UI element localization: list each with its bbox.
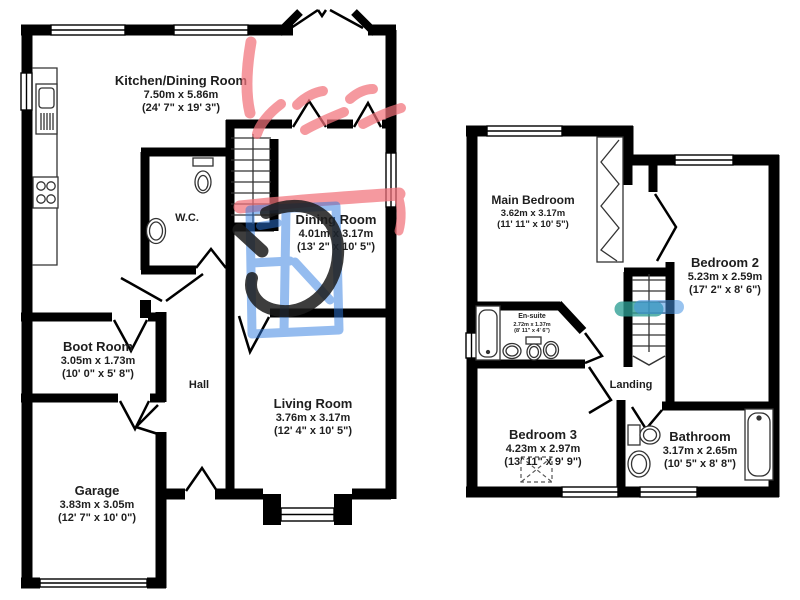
room-dim-metric: 4.23m x 2.97m (504, 443, 581, 456)
room-label-kitchen: Kitchen/Dining Room 7.50m x 5.86m (24' 7… (115, 73, 247, 116)
room-label-living: Living Room 3.76m x 3.17m (12' 4" x 10' … (274, 396, 353, 439)
room-dim-metric: 3.17m x 2.65m (663, 445, 738, 458)
garage-door-icon (40, 579, 147, 587)
room-label-main-bedroom: Main Bedroom 3.62m x 3.17m (11' 11" x 10… (491, 193, 574, 231)
room-name: Bedroom 3 (504, 427, 581, 443)
room-name: En-suite (513, 313, 550, 322)
room-name: Bathroom (663, 429, 738, 445)
room-label-hall: Hall (189, 379, 209, 392)
french-doors-icon (291, 10, 363, 28)
room-label-bedroom3: Bedroom 3 4.23m x 2.97m (13' 11" x 9' 9"… (504, 427, 581, 470)
room-dim-metric: 5.23m x 2.59m (688, 271, 763, 284)
room-dim-imperial: (13' 2" x 10' 5") (296, 241, 377, 254)
toilet-icon (526, 337, 541, 344)
room-dim-imperial: (10' 0" x 5' 8") (61, 368, 136, 381)
room-dim-imperial: (17' 2" x 8' 6") (688, 284, 763, 297)
room-label-ensuite: En-suite 2.72m x 1.37m (8' 11" x 4' 6") (513, 313, 550, 335)
room-name: Living Room (274, 396, 353, 412)
room-label-dining: Dining Room 4.01m x 3.17m (13' 2" x 10' … (296, 212, 377, 255)
room-label-garage: Garage 3.83m x 3.05m (12' 7" x 10' 0") (58, 483, 136, 526)
toilet-icon (628, 425, 640, 445)
room-dim-imperial: (11' 11" x 10' 5") (491, 219, 574, 231)
room-dim-metric: 3.83m x 3.05m (58, 499, 136, 512)
room-name: Hall (189, 379, 209, 392)
room-name: Main Bedroom (491, 193, 574, 208)
room-dim-metric: 3.76m x 3.17m (274, 412, 353, 425)
room-dim-imperial: (10' 5" x 8' 8") (663, 458, 738, 471)
room-name: W.C. (175, 212, 199, 225)
room-name: Boot Room (61, 339, 136, 355)
room-name: Kitchen/Dining Room (115, 73, 247, 89)
room-label-landing: Landing (610, 379, 653, 392)
room-name: Bedroom 2 (688, 255, 763, 271)
kitchen-fixtures (32, 68, 58, 265)
room-dim-imperial: (8' 11" x 4' 6") (513, 328, 550, 335)
room-label-bathroom: Bathroom 3.17m x 2.65m (10' 5" x 8' 8") (663, 429, 738, 472)
room-dim-imperial: (12' 4" x 10' 5") (274, 425, 353, 438)
room-name: Garage (58, 483, 136, 499)
porch-walls (279, 12, 375, 33)
room-dim-imperial: (12' 7" x 10' 0") (58, 512, 136, 525)
room-dim-metric: 3.05m x 1.73m (61, 355, 136, 368)
room-dim-metric: 3.62m x 3.17m (491, 208, 574, 220)
room-label-boot: Boot Room 3.05m x 1.73m (10' 0" x 5' 8") (61, 339, 136, 382)
stairs-ground-icon (231, 134, 271, 224)
room-label-bedroom2: Bedroom 2 5.23m x 2.59m (17' 2" x 8' 6") (688, 255, 763, 298)
bay-window (263, 494, 352, 525)
room-dim-metric: 4.01m x 3.17m (296, 228, 377, 241)
room-dim-imperial: (24' 7" x 19' 3") (115, 102, 247, 115)
hob-icon (33, 177, 58, 208)
toilet-icon (193, 158, 213, 166)
room-name: Landing (610, 379, 653, 392)
room-name: Dining Room (296, 212, 377, 228)
wall-stub (140, 300, 151, 318)
wc-fixtures (147, 158, 214, 244)
room-dim-imperial: (13' 11" x 9' 9") (504, 456, 581, 469)
room-dim-metric: 7.50m x 5.86m (115, 89, 247, 102)
stairs-first-icon (632, 274, 666, 365)
room-dim-metric: 2.72m x 1.37m (513, 322, 550, 329)
room-label-wc: W.C. (175, 212, 199, 225)
floorplan-page: Kitchen/Dining Room 7.50m x 5.86m (24' 7… (0, 0, 800, 600)
wardrobe-icon (597, 137, 623, 262)
